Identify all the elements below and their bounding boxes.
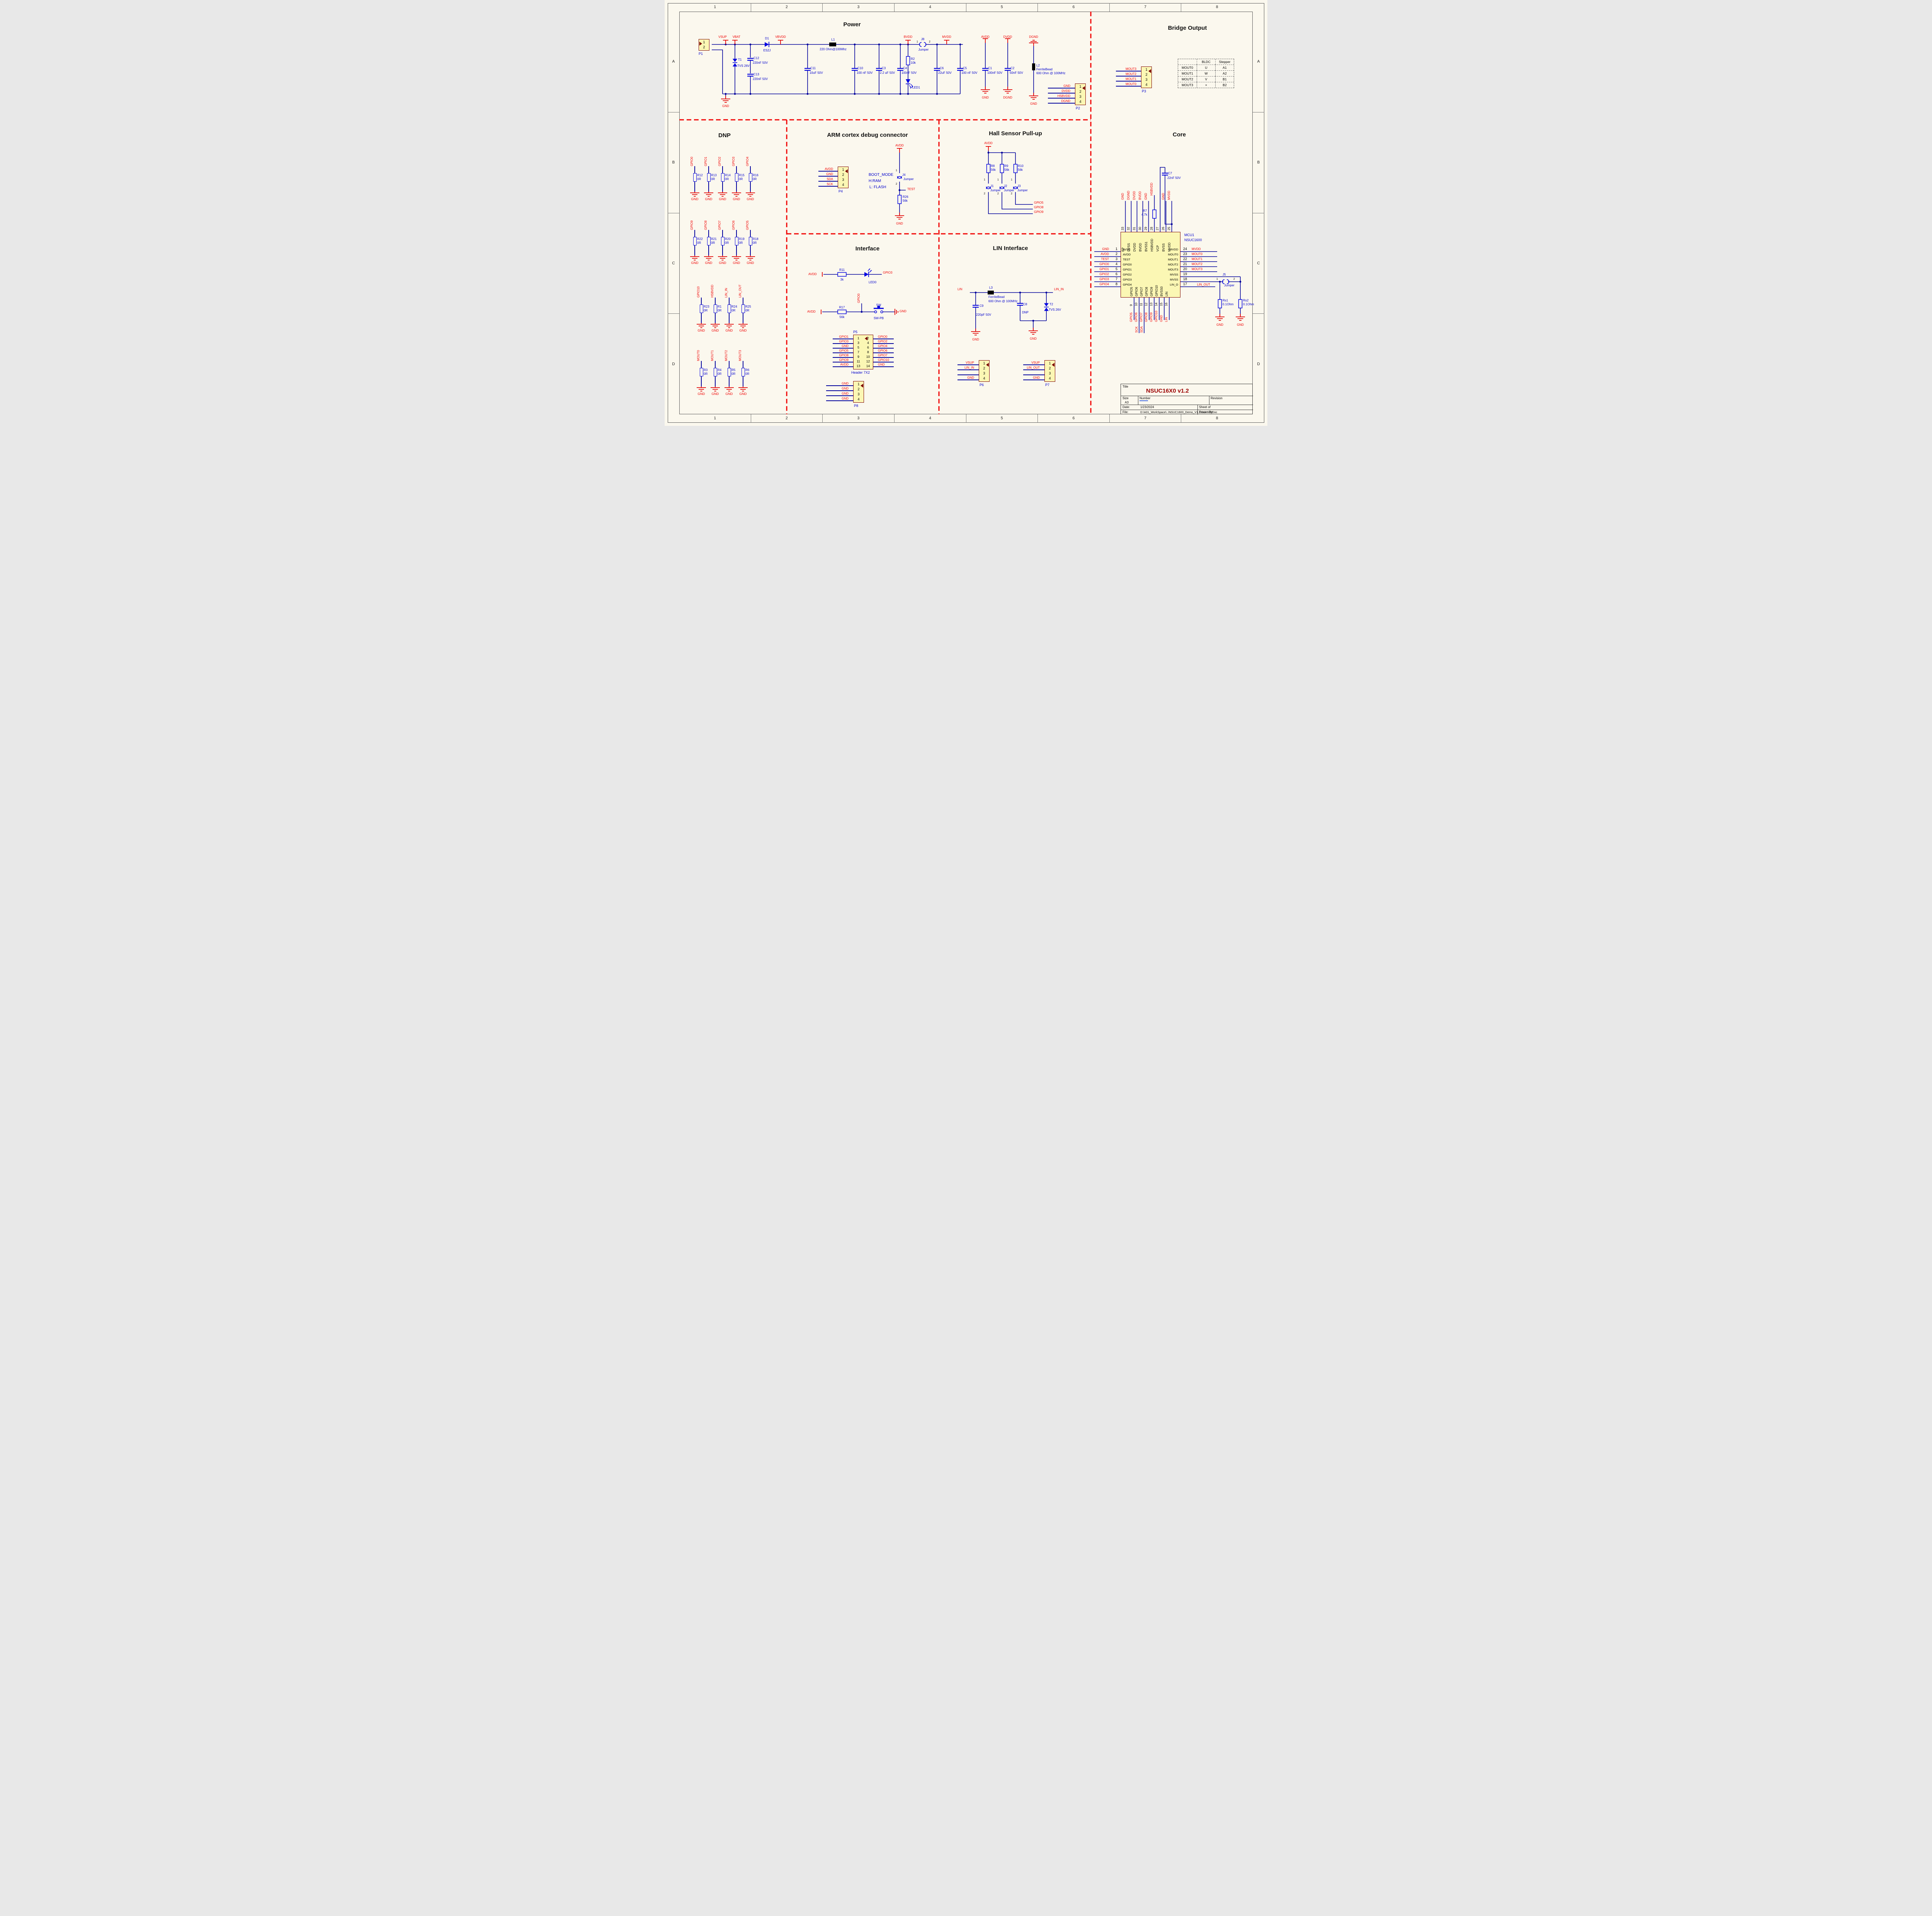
pin-number: 11 [1139,303,1143,306]
net-label: GND [842,382,849,385]
part-ref-r26: R26 [903,195,908,199]
pin-number: 4 [1116,262,1117,266]
part-val2-l3: 600 Ohm @ 100MHz [988,299,1017,303]
pin-label: 1 [1011,179,1012,181]
size-value: A3 [1125,401,1129,404]
net-label: AVDD [840,363,849,366]
part-ref-r2: R2 [911,57,915,61]
dnp-column: GPIO7 R200R GND [716,215,730,265]
gnd-icon [696,386,707,392]
net-label-lin: LIN [957,288,962,291]
net-label-gpio8: GPIO8 [1034,206,1043,209]
part-val-l1: 220 Ohm@100Mhz [820,48,847,51]
pin-number: 14 [1155,303,1158,306]
dnp-column: GPIO3 R150R GND [730,151,743,201]
net-label: MOUT3 [1192,267,1202,271]
ferrite-l1-icon [829,43,836,46]
net-label-dgnd: DGND [1029,35,1038,39]
gnd-icon [731,192,742,197]
hall-columns: R856k 1 J1Jumper 2 R956k 1 J2Jumper 2 R1… [982,154,1022,199]
pin-number: 21 [1183,262,1187,266]
net-label: MOUT2 [1126,73,1136,76]
net-label: GND [826,173,833,176]
resistor-icon [721,237,724,245]
part-val-c7: 22nF 50V [1167,176,1181,180]
pin-number: 33 [1121,227,1124,230]
net-label: MVDD [1167,191,1171,200]
gnd-label: GND [719,197,726,201]
part-val-sw: SW-PB [874,316,884,320]
pin1-arrow [863,337,867,340]
mcu-pin-name: MOUT2 [1168,262,1178,267]
mcu-pin-name: GPIO10 [1155,285,1158,296]
part-ref: R16 [753,174,759,177]
pin-label: 2 [1011,192,1012,195]
pin-number: 23 [1183,252,1187,256]
net-label: MOUT0 [1126,83,1136,86]
dnp-column: GPIO10 R230R GND [694,279,708,332]
hall-column: R1056k 1 J3Jumper 2 [1009,154,1022,199]
net-label-gnd: GND [1216,323,1223,327]
net-label-gnd: GND [722,104,729,108]
net-label: AVDD [1100,252,1109,256]
pin-number: 17 [1183,282,1187,286]
mcu-pin-name: BVDD [1139,243,1142,252]
part-val-r11: 3k [840,278,844,281]
resistor-icon [742,368,745,376]
pin1-arrow [1050,363,1054,367]
part-val-l2: FerriteBead [1036,68,1053,71]
part-ref-p8: P8 [854,404,858,408]
net-label: SCK [827,183,833,186]
net-label: LIN_IN [724,288,728,298]
resistor-icon [700,368,703,376]
mcu-pin-name: GPIO5 [1130,287,1133,296]
dnp-column: GPIO6 R190R GND [730,215,743,265]
mcu-pin-name: BVSS0 [1160,286,1163,296]
pin-number: 13 [854,364,863,368]
pin-number: 10 [1134,303,1138,306]
net-label: GPIO2 [718,157,721,166]
dnp-column: MOUT1 R40R GND [708,344,722,396]
net-label: GPIO6 [732,221,735,230]
pin-number: 2 [1116,252,1117,256]
net-label: MOUT1 [1126,78,1136,81]
part-ref-r11: R11 [839,268,845,272]
connector-p8: GNDGNDGNDGND 1234 P8 [826,381,864,403]
net-label-gpio0: GPIO0 [859,289,865,303]
resistor-rs1-icon [1218,299,1222,308]
part-ref-r7: R7 [1143,209,1147,213]
pin-number: 12 [863,359,873,364]
part-val: 0R [745,372,749,376]
resistor-icon [707,173,711,182]
pin-label: 1 [896,169,897,172]
pin-number: 1 [1116,247,1117,251]
net-label-avdd: AVDD [981,35,990,39]
file-label: File: [1122,410,1128,414]
resistor-icon [728,305,731,313]
drawn-by-label: Drawn By: [1199,410,1213,414]
net-label: GPIO7 [878,354,887,357]
resistor-icon [707,237,711,245]
pin1-arrow [843,169,848,173]
part-ref-c11: C11 [810,66,816,70]
net-label: GND [842,397,849,400]
mcu-pin-name: GPIO8 [1145,287,1148,296]
mcu-pin-name: MVSS [1168,272,1178,277]
title-block: Title NSUC16X0 v1.2 Size A3 Number Revis… [1121,384,1253,414]
net-label: MOUT3 [1126,68,1136,71]
net-label: GPIO8 [704,221,707,230]
pin-number: 30 [1138,227,1142,230]
pin-number: 4 [863,340,873,345]
gnd-icon [696,323,707,328]
gnd-icon [703,255,714,261]
net-label: GPIO2 [1100,272,1109,276]
net-label-lin-in: LIN_IN [1054,288,1064,291]
pin-number: 3 [838,177,848,182]
pin-number: 3 [1045,371,1055,376]
dnp-column: GPIO5 R180R GND [743,215,757,265]
pin-number: 14 [863,364,873,368]
connector-p6: VSUPLIN_INGND 1234 P6 [957,360,990,382]
part-val-j4: Jumper [903,177,914,181]
gnd-icon [724,386,735,392]
part-ref-c3: C3 [882,66,886,70]
net-label-vbat: VBAT [733,35,740,39]
net-label-vbvdd: VBVDD [775,35,786,39]
mcu-body: AVSSAVDDTESTGPIO0GPIO1GPIO2GPIO3GPIO4 MV… [1121,232,1180,298]
part-val-c10: 100 nF 50V [857,71,872,75]
net-label: GPIO7 [1139,313,1143,322]
part-ref-t1: T1 [738,58,742,61]
resistor-r26-icon [898,195,901,204]
part-ref-rs1: Rs1 [1223,299,1228,302]
part-ref-j4: J4 [902,173,905,177]
connector-p5: GPIO1GPIO3GNDGPIO5GPIO8GPIO9AVDD 1357911… [833,335,894,369]
pin-number: 7 [1116,277,1117,281]
part-val-d1: ES2J [763,49,770,52]
gnd-icon [745,192,756,197]
section-title-hall: Hall Sensor Pull-up [989,130,1042,137]
table-row: MOUT1WA2 [1178,70,1234,76]
pin-number: 6 [1116,272,1117,276]
mcu-pin-name: GPIO3 [1123,277,1132,282]
resistor-icon [714,305,717,313]
pin-label: 2 [929,40,930,44]
net-label: GND [967,376,974,379]
connector-p4: AVDDGNDSDASCK 1234 P4 [818,167,849,188]
schematic-sheet: 12345678 12345678 ABCD ABCD [665,0,1267,426]
pin-label: 2 [997,192,999,195]
pin-number: 10 [863,354,873,359]
net-label: GPIO1 [1100,267,1109,271]
part-val-c5: 100 nF 50V [961,71,977,75]
net-label-dgnd: DGND [1003,96,1012,99]
mcu-pin-name: TEST [1123,257,1132,262]
size-label: Size [1122,396,1129,400]
pin1-arrow [699,42,704,46]
net-label: GND [1033,376,1040,379]
net-label-gnd: GND [972,338,979,341]
part-val-t2: TVS 26V [1049,308,1061,311]
net-label: GPIO3 [732,157,735,166]
part-val: 56k [1018,168,1024,172]
pin-number: 4 [854,397,864,402]
resistor-icon [735,237,738,245]
pin-number: 3 [1116,257,1117,261]
part-val-t1: TVS 26V [737,64,750,68]
net-label: GND [1162,193,1165,200]
dnp-column: MOUT3 R60R GND [736,344,750,396]
net-label: GND [1144,193,1148,200]
net-label: GPIO8 [1145,313,1148,322]
pin-number: 32 [1127,227,1130,230]
part-ref-c4: C4 [903,66,907,70]
net-label: TEST [1101,257,1109,261]
pin-label: 2 [896,182,897,186]
net-label: GPIO5 [839,349,849,352]
net-label: GPIO4 [746,157,749,166]
resistor-icon [693,173,697,182]
table-row: MOUT2VB1 [1178,76,1234,82]
part-ref-d1: D1 [765,37,769,40]
resistor-r11-icon [838,272,846,276]
pin-number: 13 [1150,303,1153,306]
pin-number: 6 [863,345,873,350]
net-label: GPIO3 [1100,277,1109,281]
net-label: GND [842,392,849,395]
pin-number: 25 [1167,227,1171,230]
net-label: GND [1102,247,1109,251]
part-ref-r17: R17 [839,306,845,309]
pin-number: 12 [1145,303,1148,306]
dnp-row-1: GPIO0 R120R GND GPIO1 R130R GND GPIO2 R1… [688,151,757,201]
pin-number: 4 [1045,376,1055,381]
resistor-icon [728,368,731,376]
number-underline [1139,400,1148,401]
net-label: HSBVDD [711,285,714,298]
net-label: DGND [1127,191,1130,200]
net-label-vsup: VSUP [718,35,727,39]
net-label: GPIO9 [1150,313,1153,322]
ferrite-l2-icon [1032,63,1035,70]
gnd-label: GND [740,392,747,396]
section-title-arm: ARM cortex debug connector [827,132,908,138]
part-val-j8: Jumper [918,48,929,51]
part-val2-l2: 600 Ohm @ 100MHz [1036,71,1065,75]
boot-mode-note: BOOT_MODE [869,173,893,177]
mcu-pin-name: GPIO1 [1123,267,1132,272]
net-label: VSUP [1031,361,1040,364]
resistor-icon [749,173,752,182]
net-label: LIN_OUT [1027,366,1040,369]
part-ref-j8: J8 [921,37,924,41]
part-val-r2: 10k [911,61,916,65]
pin-number: 3 [1075,94,1085,99]
pin-label: 1 [1216,277,1218,281]
net-label: GND [842,345,849,348]
hall-column: R856k 1 J1Jumper 2 [982,154,995,199]
net-label: GPIO7 [718,221,721,230]
part-ref-c6: C6 [940,66,944,70]
tvs-t2-icon [1044,303,1049,311]
gnd-icon [724,323,735,328]
part-ref-c1: C1 [988,66,992,70]
gnd-icon [689,255,700,261]
net-label-hsbvdd: HSBVDD [1152,177,1157,196]
resistor-icon [735,173,738,182]
net-label: GND [878,363,885,366]
part-ref: R5 [731,368,735,372]
gnd-label: GND [698,328,705,332]
mcu-pin-name: GPIO9 [1150,287,1153,296]
part-ref-sw: SW [876,303,881,307]
net-label: GPIO0 [1100,262,1109,266]
table-row: MOUT0UA1 [1178,65,1234,70]
part-val-c1: 100nF 50V [987,71,1002,75]
net-label: GPIO6 [1134,313,1138,322]
net-label-gnd: GND [900,310,906,313]
gnd-label: GND [726,392,733,396]
net-label: LIN [1165,317,1168,322]
pin-number: 7 [854,350,863,354]
net-label-bvdd: BVDD [904,35,912,39]
net-label: GPIO5 [746,221,749,230]
part-val-rs2: 0.1Ohm [1243,303,1254,306]
part-val: 0R [753,241,759,245]
net-label-avdd: AVDD [895,144,904,147]
part-ref: R4 [718,368,721,372]
gnd-label: GND [747,197,754,201]
connector-p2: GNDDVDDHSBVDDDGND 1234 P2 [1048,83,1086,105]
gnd-label: GND [712,392,719,396]
net-label: VSUP [966,361,974,364]
pin-label: 1 [917,40,918,44]
part-ref-t2: T2 [1049,303,1053,306]
net-label: MOUT3 [738,350,742,361]
mcu-pin-name: DVSS [1127,243,1131,252]
net-label-gnd: GND [1030,337,1037,340]
part-val-r26: 56k [903,199,908,202]
part-val-j5: Jumper [1224,284,1235,287]
net-label: GPIO5 [1129,313,1133,322]
gnd-label: GND [705,197,713,201]
part-val-c12: 220nF 50V [753,61,768,65]
date-label: Date: [1122,405,1130,409]
part-ref-led0: LED0 [869,281,876,284]
gnd-label: GND [698,392,705,396]
dnp-row-3: GPIO10 R230R GND HSBVDD R10R GND LIN_IN … [694,279,750,332]
number-label: Number [1139,396,1150,400]
part-ref: R18 [753,237,759,241]
part-val-c3: 2.2 uF 50V [880,71,895,75]
mcu-pin-name: AVDD [1123,252,1132,257]
section-title-interface: Interface [855,245,880,252]
net-label: GPIO9 [839,359,849,362]
part-ref: R10 [1018,164,1024,168]
net-label: GPIO9 [690,221,694,230]
pin-number: 9 [1129,305,1133,306]
part-ref-c10: C10 [857,66,863,70]
net-label: DVDD [1061,90,1070,93]
resistor-icon [749,237,752,245]
part-ref-p3: P3 [1142,89,1146,93]
resistor-r17-icon [838,310,846,314]
pin-number: 22 [1183,257,1187,261]
mcu-pin-name: GPIO7 [1140,287,1143,296]
dnp-row-4: MOUT0 R30R GND MOUT1 R40R GND MOUT2 R50R… [694,344,750,396]
net-label: GPIO10 [1155,311,1158,322]
jumper-j8-icon [920,43,926,47]
net-label: MOUT0 [697,350,700,361]
diode-d1-icon [765,42,769,47]
mcu-pin-name: GPIO6 [1135,287,1138,296]
resistor-icon [721,173,724,182]
dnp-row-2: GPIO9 R220R GND GPIO8 R210R GND GPIO7 R2… [688,215,757,265]
pin-number: 4 [1141,82,1151,87]
dnp-column: GPIO0 R120R GND [688,151,702,201]
net-label-dvdd: DVDD [1003,35,1012,39]
pin-number: 3 [854,392,864,397]
led0-icon [864,269,872,277]
net-label: MOUT1 [711,350,714,361]
gnd-label: GND [747,261,754,265]
net-label: GPIO10 [697,286,700,298]
mcu-pin-name: BVSS1 [1145,242,1148,252]
part-val-c13: 220nF 50V [753,77,768,81]
pin-number: 4 [1075,99,1085,104]
net-label: GND [1063,85,1070,88]
dnp-column: MOUT2 R50R GND [722,344,736,396]
part-ref: R1 [718,305,721,309]
part-ref-j5: J5 [1223,273,1226,276]
net-label: GPIO1 [839,335,849,339]
tvs-t1-icon [733,59,737,66]
net-label: GPIO2 [878,340,887,343]
gnd-label: GND [712,328,719,332]
pin-number: 19 [1183,272,1187,276]
gnd-icon [717,192,728,197]
net-label: GPIO3 [839,340,849,343]
part-ref-c5: C5 [963,66,967,70]
pin-number: 4 [979,376,989,381]
gnd-label: GND [691,197,699,201]
net-label-test: TEST [907,187,915,191]
gnd-icon [703,192,714,197]
connector-p1: 12 P1 [699,39,709,51]
dnp-column: LIN_IN R240R GND [722,279,736,332]
sheet-label: Sheet of [1199,405,1211,409]
net-label: MOUT2 [724,350,728,361]
net-label-avdd: AVDD [807,310,816,313]
pin-number: 5 [1116,267,1117,271]
net-label: GPIO4 [878,345,887,348]
jumper-j5-icon [1223,280,1229,284]
mcu-pin-name: LIN [1165,292,1168,296]
gnd-label: GND [733,197,740,201]
part-val-rs1: 0.1Ohm [1223,303,1233,306]
boot-mode-note: L: FLASH [869,185,886,189]
dnp-column: LIN_OUT R250R GND [736,279,750,332]
pin-label: 2 [1233,277,1235,281]
part-ref-mcu1: MCU1 [1184,233,1194,237]
resistor-icon [742,305,745,313]
resistor-icon [693,237,697,245]
section-title-lin: LIN Interface [993,245,1028,252]
net-label: DGND [1061,100,1070,103]
